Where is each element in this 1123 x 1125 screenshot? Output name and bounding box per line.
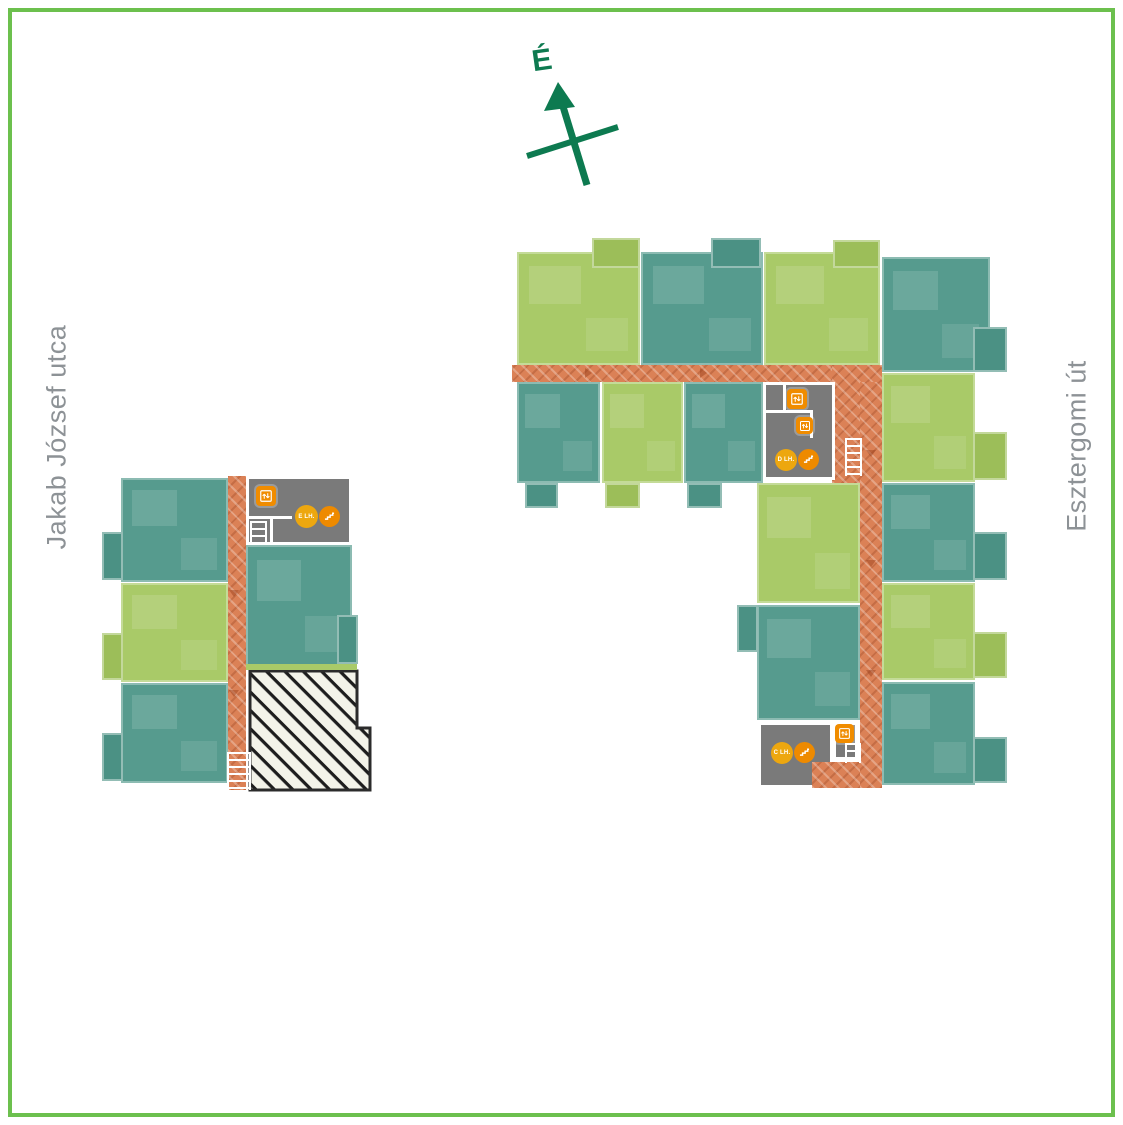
unit-west-col-teal[interactable] xyxy=(757,605,860,720)
entry-hall xyxy=(812,762,860,788)
street-label-left: Jakab József utca xyxy=(42,325,73,550)
elevator-icon xyxy=(787,389,807,409)
unit-bottom-row-teal-1[interactable] xyxy=(517,382,600,483)
corridor-vertical xyxy=(860,382,882,788)
stairs-symbol xyxy=(845,438,862,476)
unit-west-col-green[interactable] xyxy=(757,483,860,603)
balcony xyxy=(337,615,358,664)
stairs-icon xyxy=(794,742,815,763)
unit-top-row-green-2[interactable] xyxy=(764,252,880,365)
unit-bottom-row-teal-2[interactable] xyxy=(684,382,763,483)
elevator-icon xyxy=(256,486,276,506)
corridor-arrow-icon xyxy=(866,560,876,567)
balcony xyxy=(687,483,722,508)
corridor-left-building xyxy=(228,476,246,790)
unit-east-col-green-1[interactable] xyxy=(882,373,975,482)
corridor-arrow-icon xyxy=(585,368,592,378)
stair-core-d-badge: D LH. xyxy=(775,449,797,471)
stairs-icon xyxy=(319,506,340,527)
corridor-arrow-icon xyxy=(229,590,239,597)
corridor-arrow-icon xyxy=(229,690,239,697)
unit-edge-strip xyxy=(246,664,357,670)
unit-top-row-green-1[interactable] xyxy=(517,252,640,365)
unit-top-row-teal[interactable] xyxy=(641,252,763,365)
corridor-arrow-icon xyxy=(866,670,876,677)
balcony xyxy=(737,605,758,652)
site-plan: É Jakab József utca Esztergomi út E LH. xyxy=(0,0,1123,1125)
balcony xyxy=(592,238,640,268)
street-label-right: Esztergomi út xyxy=(1062,360,1093,532)
corridor-arrow-icon xyxy=(866,450,876,457)
unit-left-bottom-teal[interactable] xyxy=(121,683,228,783)
balcony xyxy=(973,737,1007,783)
wall xyxy=(270,516,273,545)
balcony xyxy=(102,633,123,680)
unit-east-col-teal-2[interactable] xyxy=(882,682,975,785)
balcony xyxy=(973,327,1007,372)
corridor-horizontal xyxy=(512,365,882,382)
north-arrow-icon xyxy=(500,70,640,200)
balcony xyxy=(833,240,880,268)
balcony xyxy=(605,483,640,508)
unit-east-col-green-2[interactable] xyxy=(882,583,975,680)
balcony xyxy=(525,483,558,508)
stair-core-c-badge: C LH. xyxy=(771,742,793,764)
wall xyxy=(783,384,786,410)
unit-bottom-row-green[interactable] xyxy=(602,382,683,483)
elevator-icon xyxy=(835,724,854,743)
stairs-symbol xyxy=(250,521,267,543)
unit-left-top-teal[interactable] xyxy=(121,478,228,582)
unit-left-mid-green[interactable] xyxy=(121,583,228,682)
stairs-symbol xyxy=(227,752,251,790)
balcony xyxy=(973,632,1007,678)
unit-east-col-teal-1[interactable] xyxy=(882,483,975,582)
balcony xyxy=(102,532,123,580)
stairs-icon xyxy=(798,449,819,470)
unit-reserved-hatched[interactable] xyxy=(248,669,372,792)
balcony xyxy=(973,532,1007,580)
stairs-symbol xyxy=(845,743,861,763)
stair-core-e-badge: E LH. xyxy=(295,505,318,528)
wall xyxy=(246,516,292,519)
balcony xyxy=(102,733,123,781)
corridor-arrow-icon xyxy=(700,368,707,378)
balcony xyxy=(711,238,761,268)
elevator-icon xyxy=(796,417,813,434)
wall xyxy=(763,410,813,413)
balcony xyxy=(973,432,1007,480)
